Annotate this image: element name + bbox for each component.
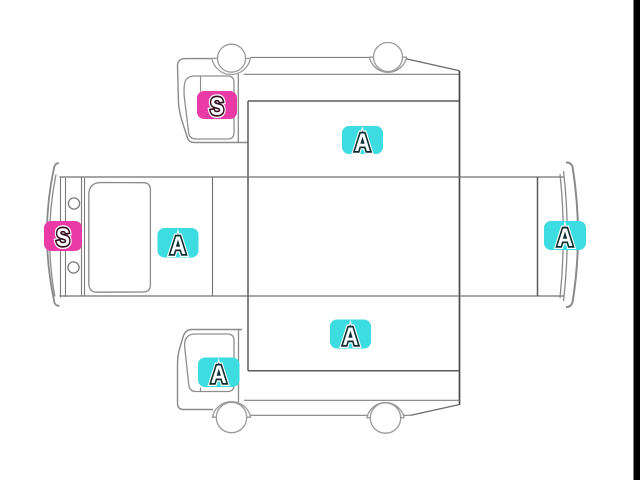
svg-text:A: A xyxy=(343,323,359,351)
svg-text:A: A xyxy=(170,232,186,260)
svg-text:A: A xyxy=(355,129,371,157)
svg-text:A: A xyxy=(211,361,227,389)
svg-text:S: S xyxy=(56,224,70,252)
svg-text:S: S xyxy=(210,93,224,121)
svg-text:A: A xyxy=(557,224,573,252)
